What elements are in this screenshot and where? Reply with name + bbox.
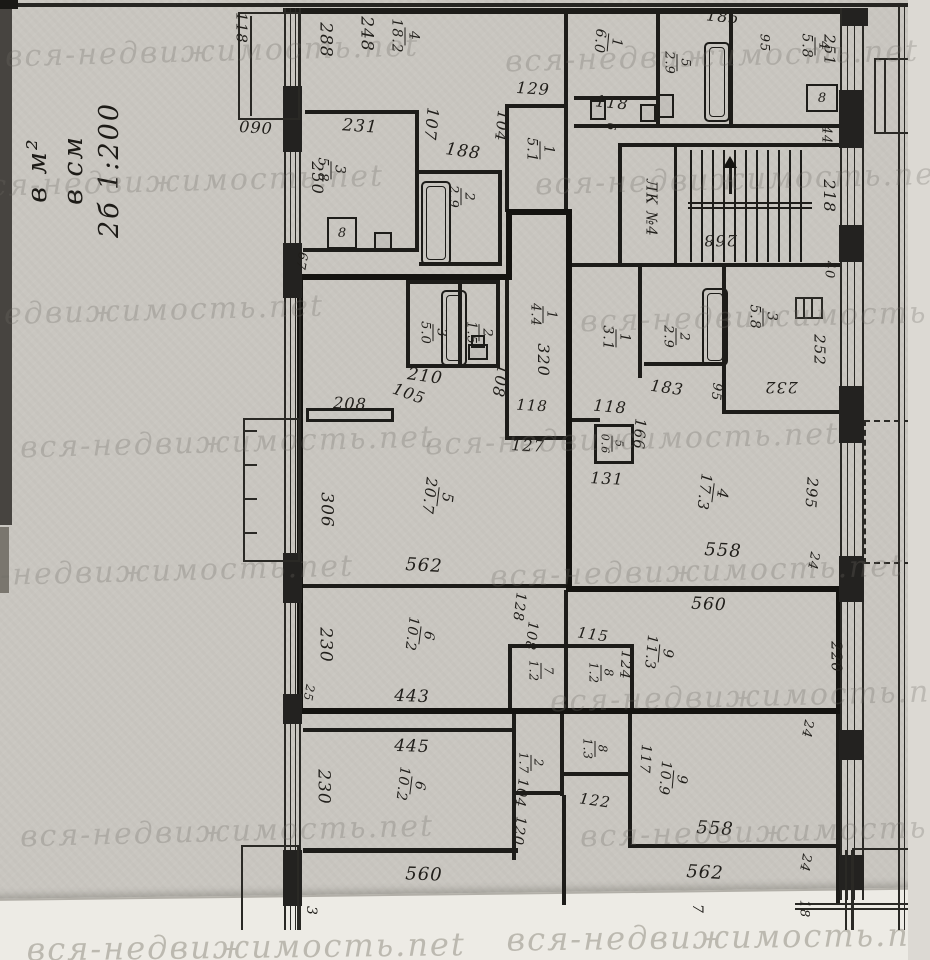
room-number: 8 (595, 741, 609, 758)
window-line (898, 7, 900, 930)
wall (306, 419, 394, 422)
vent-box (795, 297, 797, 319)
paper-edge-strip: вся-недвижимость.netвся-недвижимость.net (0, 887, 930, 960)
wall (505, 104, 568, 108)
scan-mark (0, 0, 18, 9)
room-number-area-label: 14.4 (529, 303, 558, 327)
balcony (297, 845, 299, 930)
room-number-area-label: 21.7 (518, 752, 545, 774)
room-area: 17.3 (694, 472, 714, 511)
room-area: 10.9 (656, 760, 674, 796)
balcony (245, 430, 257, 432)
room-area: 11.3 (642, 634, 660, 670)
room-number-area-label: 21.5 (465, 321, 494, 345)
dimension-label: 443 (394, 688, 430, 706)
room-number: 2 (531, 755, 545, 772)
dimension-label: 7 (690, 904, 704, 914)
balcony (245, 498, 257, 500)
dimension-label: 231 (342, 117, 379, 136)
stair-tread (789, 150, 791, 262)
dimension-label: 24 (799, 719, 815, 740)
balcony (298, 12, 300, 120)
scan-shadow-left (0, 7, 12, 525)
room-number: 7 (541, 663, 555, 680)
dimension-label: 24 (805, 551, 821, 572)
fraction: 22.9 (662, 325, 691, 349)
wall-pier (839, 225, 864, 262)
bathtub (704, 42, 730, 122)
dimension-label: 129 (516, 80, 551, 98)
room-number: 8 (601, 665, 615, 682)
room-area: 5.8 (748, 304, 763, 329)
room-number: 1 (543, 306, 558, 323)
dimension-label: 108 (522, 620, 540, 651)
room-number-area-label: 16.0 (591, 28, 624, 56)
wall (406, 280, 500, 284)
stair-tread (756, 150, 758, 262)
dimension-label: 558 (704, 541, 742, 561)
dimension-label: 104 (492, 109, 510, 142)
room-number: 3 (331, 161, 347, 179)
wall (638, 267, 642, 378)
room-area: 6.0 (591, 28, 608, 54)
room-number: 3 (433, 324, 448, 341)
fraction: 418.2 (390, 18, 421, 53)
fraction: 52.9 (663, 51, 692, 75)
scan-shadow-left (0, 527, 9, 593)
watermark: вся-недвижимость.net (506, 915, 930, 958)
dimension-label: 104 (512, 777, 530, 808)
room-number: 5 (677, 54, 692, 71)
fraction: 13.1 (601, 325, 632, 350)
fraction: 520.7 (419, 476, 456, 517)
apartment-outline-bold (506, 209, 572, 215)
wall-pier (839, 90, 864, 148)
balcony (243, 418, 245, 562)
wall (722, 410, 842, 414)
dimension-label: 562 (686, 863, 724, 883)
wall (305, 110, 419, 114)
vent-box (795, 297, 823, 299)
room-number: 5 (612, 436, 625, 452)
dimension-label: 252 (812, 334, 827, 366)
wall (505, 280, 509, 440)
stair-tread (767, 150, 769, 262)
bathtub-inner (426, 186, 446, 260)
room-number-area-label: 81.3 (582, 738, 609, 760)
wall (729, 168, 732, 194)
dimension-label: 188 (444, 141, 481, 163)
room-number-area-label: 911.3 (642, 634, 676, 672)
bathtub (702, 288, 728, 366)
balcony (851, 850, 853, 930)
wall (564, 590, 568, 648)
dimension-label: 6 (605, 123, 617, 132)
wall (594, 424, 597, 464)
apartment-outline-bold (297, 708, 842, 714)
stair-tread (778, 150, 780, 262)
bathtub-inner (707, 293, 723, 361)
room-number-area-label: 22.9 (447, 185, 476, 209)
fraction: 14.4 (529, 303, 558, 327)
room-number-area-label: 610.2 (402, 616, 437, 655)
fraction: 22.9 (447, 185, 476, 209)
dimension-label: 118 (234, 12, 249, 44)
dimension-label: 24 (797, 853, 813, 874)
apartment-outline-bold (566, 209, 572, 592)
dimension-label: 250 (309, 161, 325, 195)
room-number-area-label: 50.6 (600, 434, 625, 455)
wall (566, 263, 842, 267)
room-number-area-label: 71.2 (528, 660, 555, 682)
dimension-label: 118 (516, 398, 548, 415)
stairwell-label: ЛК №4 (644, 179, 659, 237)
room-number: 1 (607, 33, 625, 52)
scale-note: в м² в см 2б 1:200 (20, 40, 130, 300)
wall (562, 795, 566, 905)
fraction: 610.2 (393, 766, 428, 805)
wall (688, 207, 812, 209)
room-area: 0.6 (600, 434, 612, 455)
room-area: 5.1 (525, 137, 540, 162)
dimension-label: 560 (405, 865, 443, 884)
wall (306, 408, 309, 422)
room-number: 2 (676, 328, 691, 345)
dimension-label: 560 (691, 596, 727, 615)
wall (560, 714, 564, 796)
dimension-label: 120 (510, 815, 528, 846)
dimension-label: 124 (617, 650, 633, 681)
fraction: 911.3 (642, 634, 676, 672)
stair-tread (690, 150, 692, 262)
dimension-label: 108 (489, 363, 511, 399)
wall (303, 584, 570, 588)
apartment-outline-bold (566, 586, 842, 592)
dimension-label: 218 (821, 179, 837, 213)
dimension-label: 268 (703, 232, 737, 248)
balcony (245, 464, 257, 466)
fraction: 21.7 (518, 752, 545, 774)
plumbing-fixture (374, 232, 392, 252)
bathtub-inner (709, 47, 725, 117)
room-number: 6 (409, 776, 427, 796)
dimension-label: 220 (829, 641, 844, 673)
stair-tread (745, 150, 747, 262)
room-area: 20.7 (419, 476, 439, 515)
dimension-label: 131 (590, 470, 624, 488)
wall-pier (839, 556, 864, 602)
fraction: 35.0 (419, 321, 448, 345)
room-number-area-label: 81.2 (588, 662, 615, 684)
dimension-label: 295 (802, 477, 819, 510)
dimension-label: 185 (705, 7, 740, 26)
fraction: 81.2 (588, 662, 615, 684)
dimension-label: 090 (239, 119, 274, 137)
wall (688, 202, 812, 204)
room-number-area-label: 13.1 (601, 325, 632, 350)
wall (303, 248, 419, 252)
wall (496, 280, 500, 368)
room-area: 1.2 (528, 660, 541, 682)
dimension-label: 118 (594, 93, 629, 112)
balcony (243, 560, 300, 562)
room-area: 2.9 (447, 185, 461, 209)
balcony (884, 60, 886, 132)
room-number-area-label: 35.8 (748, 304, 779, 329)
dimension-label: 95 (758, 34, 771, 53)
room-area: 1.7 (518, 752, 531, 774)
vent-shaft-box: 8 (806, 84, 838, 112)
wall (628, 714, 632, 848)
room-area: 1.5 (465, 321, 479, 345)
dimension-label: 107 (421, 106, 440, 141)
room-number-area-label: 417.3 (694, 472, 731, 513)
dimension-label: 558 (696, 819, 734, 839)
dimension-label: 115 (576, 625, 609, 644)
balcony (845, 850, 847, 930)
room-number-area-label: 418.2 (390, 18, 421, 53)
room-number: 6 (418, 626, 436, 646)
wall (415, 110, 419, 252)
vent-box (803, 297, 805, 319)
wall (419, 170, 502, 174)
wall-pier (842, 8, 868, 26)
dimension-label: 95 (709, 382, 724, 402)
fraction: 21.5 (465, 321, 494, 345)
room-area: 10.2 (393, 766, 412, 803)
room-number: 1 (616, 329, 632, 347)
room-number: 3 (763, 308, 779, 326)
dimension-label: 18 (798, 900, 811, 919)
stair-tread (800, 150, 802, 262)
room-area: 1.3 (582, 738, 595, 760)
room-number-area-label: 35.0 (419, 321, 448, 345)
dimension-label: 117 (637, 744, 653, 775)
vent-shaft-box: 8 (327, 217, 357, 249)
wall-pier (283, 694, 302, 724)
room-area: 5.8 (800, 33, 815, 58)
wall (564, 644, 568, 710)
room-area: 2.9 (663, 51, 677, 75)
wall (564, 772, 632, 776)
wall (618, 143, 842, 147)
room-area: 18.2 (390, 18, 405, 53)
wall (303, 848, 518, 853)
room-number-area-label: 15.1 (525, 137, 556, 162)
wall (391, 408, 394, 422)
dimension-label: 208 (333, 395, 367, 413)
fraction: 71.2 (528, 660, 555, 682)
wall-pier (283, 850, 302, 906)
scale-note-line: в см (56, 40, 92, 300)
dimension-label: 25 (302, 683, 317, 702)
apartment-outline-bold (297, 274, 512, 280)
dimension-label: 118 (593, 398, 628, 417)
balcony (298, 418, 300, 562)
room-number: 9 (672, 770, 690, 789)
stair-direction-arrow (723, 156, 737, 168)
dimension-label: 127 (511, 437, 545, 455)
scale-note-line: в м² (20, 40, 56, 300)
room-number: 4 (405, 27, 421, 45)
window-line (904, 7, 905, 930)
room-area: 2.9 (662, 325, 676, 349)
balcony (245, 532, 257, 534)
room-number-area-label: 910.9 (656, 760, 690, 798)
watermark: вся-недвижимость.net (26, 925, 466, 960)
room-area: 4.4 (529, 303, 543, 327)
wall (594, 424, 634, 427)
fraction: 610.2 (402, 616, 437, 655)
balcony (243, 418, 300, 420)
room-area: 3.1 (601, 325, 616, 350)
dimension-label: 288 (317, 22, 334, 57)
dimension-label: 3 (304, 906, 318, 916)
room-number-area-label: 52.9 (663, 51, 692, 75)
dimension-label: 306 (318, 492, 335, 527)
room-number: 9 (658, 644, 676, 663)
dimension-label: 248 (358, 16, 375, 51)
room-area: 5.0 (419, 321, 433, 345)
balcony (874, 58, 876, 134)
wall (508, 644, 512, 710)
room-number-area-label: 22.9 (662, 325, 691, 349)
watermark: вся-недвижимость.net (20, 420, 435, 466)
wall (618, 143, 622, 267)
fraction: 35.8 (748, 304, 779, 329)
room-number-area-label: 520.7 (419, 476, 456, 517)
dimension-label: 128 (510, 591, 528, 622)
apartment-outline-bold (506, 209, 512, 280)
fraction: 16.0 (591, 28, 624, 56)
plumbing-fixture (640, 104, 656, 122)
wall (630, 844, 842, 848)
vent-box (795, 317, 823, 319)
scale-note-line: 2б 1:200 (92, 40, 128, 300)
wall (498, 170, 502, 266)
wall (564, 8, 568, 211)
dimension-label: 445 (394, 738, 430, 756)
floor-plan-scan: в м² в см 2б 1:200 вся-недвижимость.netв… (0, 0, 930, 960)
dimension-label: 67 (293, 251, 309, 272)
wall (406, 280, 410, 368)
fraction: 50.6 (600, 434, 625, 455)
room-number: 2 (461, 188, 476, 205)
fraction: 910.9 (656, 760, 690, 798)
dimension-label: 40 (823, 261, 836, 280)
balcony (241, 845, 299, 847)
wall (303, 728, 516, 732)
page-margin-right (908, 0, 930, 960)
fraction: 417.3 (694, 472, 731, 513)
fraction: 81.3 (582, 738, 609, 760)
dimension-label: 44 (820, 126, 833, 145)
room-number: 1 (540, 141, 556, 159)
vent-box (821, 297, 823, 319)
wall (594, 461, 634, 464)
dimension-label: 562 (405, 556, 443, 576)
dimension-label: 232 (764, 379, 798, 395)
dimension-label: 230 (317, 627, 334, 662)
room-area: 10.2 (402, 616, 421, 653)
room-area: 1.2 (588, 662, 601, 684)
scan-frame-edge (0, 3, 930, 7)
dimension-label: 230 (315, 769, 332, 804)
room-number: 2 (479, 324, 494, 341)
vent-box (811, 297, 813, 319)
dimension-label: 251 (822, 34, 837, 66)
dimension-label: 183 (649, 378, 684, 399)
dimension-label: 320 (535, 343, 551, 377)
fraction: 15.1 (525, 137, 556, 162)
wall-pier (839, 730, 864, 760)
plumbing-fixture (656, 94, 674, 118)
dimension-label: 166 (630, 418, 647, 451)
dimension-label: 122 (578, 791, 611, 810)
wall (674, 147, 677, 267)
wall (283, 8, 866, 14)
balcony (241, 845, 243, 930)
room-number-area-label: 610.2 (393, 766, 428, 805)
wall-pier (839, 386, 864, 443)
